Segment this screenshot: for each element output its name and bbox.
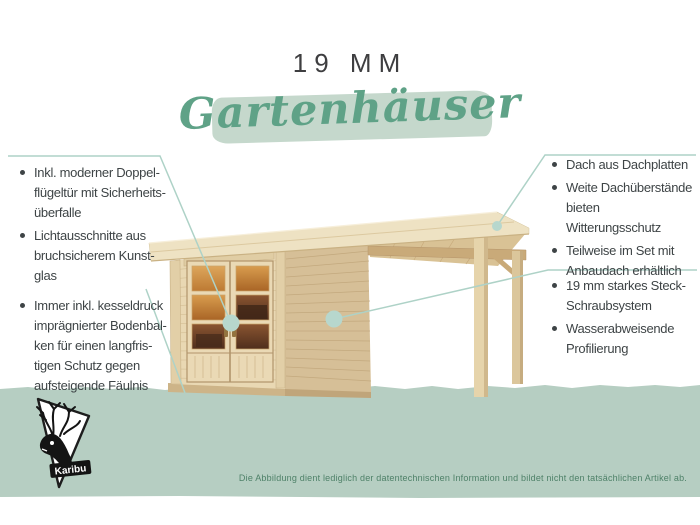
canopy-post-rear bbox=[512, 251, 523, 384]
callout-door-features: Inkl. moderner Doppel- flügeltür mit Sic… bbox=[20, 163, 168, 289]
feature-item: Teilweise im Set mit Anbaudach erhältlic… bbox=[552, 241, 694, 281]
bullet-dot bbox=[552, 326, 557, 331]
feature-item: Lichtausschnitte aus bruchsicherem Kunst… bbox=[20, 226, 168, 286]
bullet-dot bbox=[20, 303, 25, 308]
corner-trim-left bbox=[170, 260, 181, 384]
product-infographic: Karibu 19 MM Gartenhäuser Inkl. moderner… bbox=[0, 0, 700, 525]
feature-item: Weite Dachüberstände bieten Witterungssc… bbox=[552, 178, 694, 238]
bullet-dot bbox=[552, 248, 557, 253]
page-title: 19 MM bbox=[0, 48, 700, 79]
feature-item: Immer inkl. kesseldruck imprägnierter Bo… bbox=[20, 296, 168, 396]
callout-wall-features: 19 mm starkes Steck- Schraubsystem Wasse… bbox=[552, 276, 694, 362]
corner-trim-right bbox=[276, 250, 285, 388]
feature-item: Wasserabweisende Profilierung bbox=[552, 319, 694, 359]
dot-roof-corner bbox=[492, 221, 502, 231]
disclaimer-text: Die Abbildung dient lediglich der datent… bbox=[239, 473, 687, 483]
bullet-dot bbox=[20, 233, 25, 238]
callout-floor-features: Immer inkl. kesseldruck imprägnierter Bo… bbox=[20, 296, 168, 399]
bullet-dot bbox=[20, 170, 25, 175]
bullet-dot bbox=[552, 185, 557, 190]
bullet-dot bbox=[552, 283, 557, 288]
dot-side-wall bbox=[326, 311, 343, 328]
bullet-dot bbox=[552, 162, 557, 167]
dot-door-glass bbox=[223, 315, 240, 332]
feature-item: Dach aus Dachplatten bbox=[552, 155, 694, 175]
callout-roof-features: Dach aus Dachplatten Weite Dachüberständ… bbox=[552, 155, 694, 284]
feature-item: 19 mm starkes Steck- Schraubsystem bbox=[552, 276, 694, 316]
canopy-post-front bbox=[474, 233, 488, 397]
feature-item: Inkl. moderner Doppel- flügeltür mit Sic… bbox=[20, 163, 168, 223]
